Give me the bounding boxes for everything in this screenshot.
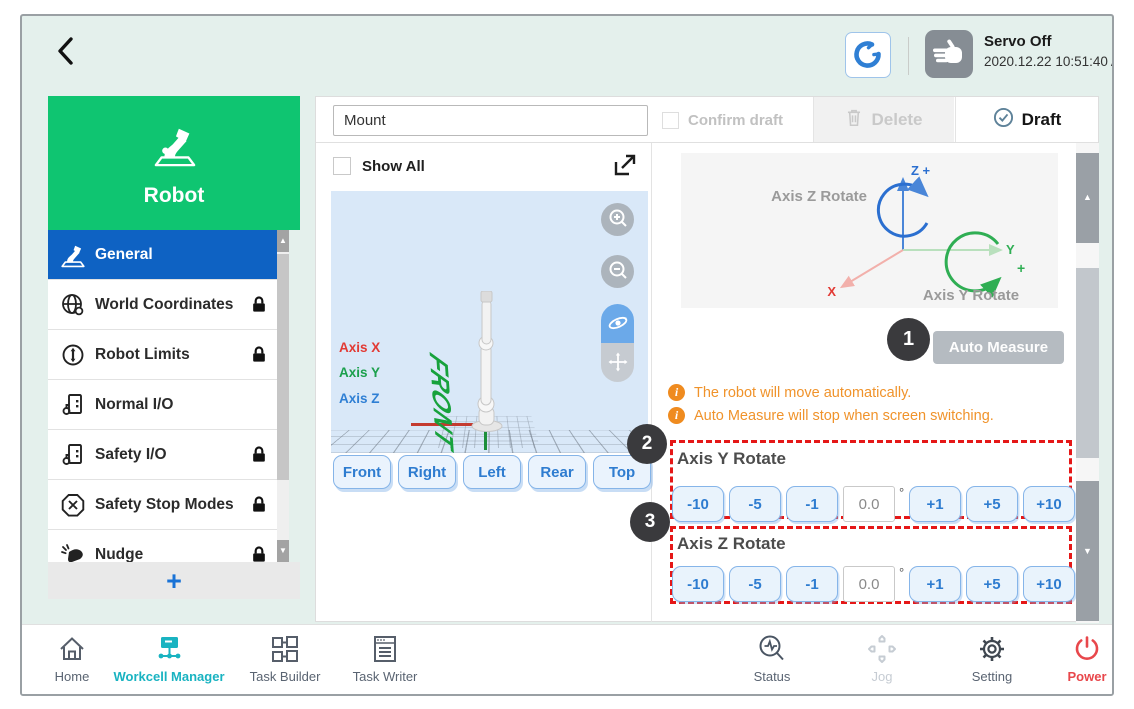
- check-circle-icon: [993, 107, 1014, 133]
- main-panel: Confirm draft Delete Draft Show All: [315, 96, 1099, 622]
- view-front-button[interactable]: Front: [333, 455, 391, 489]
- axis-z-rotate-label: Axis Z Rotate: [771, 188, 867, 205]
- sidebar-menu: General World Coordinates: [48, 230, 289, 576]
- robot-arm-model: [453, 291, 517, 438]
- show-all-label: Show All: [362, 158, 425, 175]
- show-all-checkbox[interactable]: [333, 157, 351, 175]
- annotation-badge-3: 3: [630, 502, 670, 542]
- direct-teach-button[interactable]: [845, 32, 891, 78]
- delete-button[interactable]: Delete: [813, 97, 954, 142]
- sidebar-item-normal-io[interactable]: Normal I/O: [48, 380, 277, 430]
- axis-y-minus-10-button[interactable]: -10: [672, 486, 724, 522]
- sidebar-item-label: Safety I/O: [95, 446, 167, 464]
- scrollbar-thumb[interactable]: [277, 254, 289, 480]
- scroll-down-icon[interactable]: ▼: [277, 540, 289, 562]
- axis-z-plus-5-button[interactable]: +5: [966, 566, 1018, 602]
- add-workcell-item-button[interactable]: +: [48, 562, 300, 599]
- axis-z-rotate-title: Axis Z Rotate: [677, 534, 786, 554]
- view-rear-button[interactable]: Rear: [528, 455, 586, 489]
- y-axis-label: Y: [1006, 242, 1015, 257]
- view-left-button[interactable]: Left: [463, 455, 521, 489]
- bottom-nav-bar: Home Workcell Manager: [22, 624, 1112, 695]
- power-icon: [1022, 633, 1114, 665]
- sidebar-item-general[interactable]: General: [48, 230, 277, 280]
- app-frame: Servo Off 2020.12.22 10:51:40 AM Robot: [20, 14, 1114, 696]
- axis-z-minus-5-button[interactable]: -5: [729, 566, 781, 602]
- degree-unit: °: [899, 565, 904, 580]
- warning-text: Auto Measure will stop when screen switc…: [694, 408, 994, 424]
- axis-z-key: Axis Z: [339, 391, 380, 406]
- io-panel-icon: [60, 442, 86, 468]
- item-name-input[interactable]: [333, 105, 648, 136]
- degree-unit: °: [899, 485, 904, 500]
- sidebar-item-label: General: [95, 246, 153, 264]
- axis-y-rotate-title: Axis Y Rotate: [677, 449, 786, 469]
- task-writer-icon: [320, 633, 450, 665]
- panel-divider: [651, 143, 652, 622]
- back-button[interactable]: [46, 30, 86, 74]
- zoom-out-button[interactable]: [601, 255, 634, 288]
- axis-z-minus-1-button[interactable]: -1: [786, 566, 838, 602]
- auto-measure-button[interactable]: Auto Measure: [933, 331, 1064, 364]
- z-axis-label: Z +: [911, 163, 931, 178]
- sidebar-item-safety-stop-modes[interactable]: Safety Stop Modes: [48, 480, 277, 530]
- nav-label: Task Writer: [320, 669, 450, 684]
- sidebar-item-robot-limits[interactable]: Robot Limits: [48, 330, 277, 380]
- axis-y-minus-1-button[interactable]: -1: [786, 486, 838, 522]
- viewer-mode-toggle: [601, 304, 634, 382]
- axis-y-plus-1-button[interactable]: +1: [909, 486, 961, 522]
- scroll-down-icon[interactable]: ▼: [1076, 481, 1099, 621]
- robot-3d-viewer[interactable]: FRONT Axis X Axis Y Axis Z: [331, 191, 648, 453]
- robot-arm-icon: [60, 242, 86, 268]
- screen: Servo Off 2020.12.22 10:51:40 AM Robot: [0, 0, 1134, 709]
- sidebar-item-label: Normal I/O: [95, 396, 173, 414]
- delete-label: Delete: [871, 110, 922, 130]
- axis-y-rotate-label: Axis Y Rotate: [923, 287, 1019, 304]
- back-chevron-icon: [53, 55, 79, 70]
- panel-scrollbar[interactable]: ▲ ▼: [1076, 143, 1099, 623]
- scroll-up-icon[interactable]: ▲: [277, 230, 289, 252]
- annotation-badge-2: 2: [627, 424, 667, 464]
- y-plus-label: +: [1017, 260, 1025, 276]
- sidebar-scrollbar[interactable]: ▲ ▼: [277, 230, 289, 562]
- io-panel-icon: [60, 392, 86, 418]
- lock-icon: [249, 495, 269, 515]
- gripper-icon: [851, 60, 885, 75]
- sidebar-item-label: Nudge: [95, 546, 143, 564]
- topbar-divider: [908, 37, 909, 75]
- sidebar-item-label: Safety Stop Modes: [95, 496, 234, 514]
- nav-power[interactable]: Power: [1022, 633, 1114, 684]
- warning-row: i Auto Measure will stop when screen swi…: [668, 407, 994, 424]
- pan-view-button[interactable]: [601, 343, 634, 382]
- hand-icon: [925, 65, 973, 82]
- nav-task-writer[interactable]: Task Writer: [320, 633, 450, 684]
- axis-z-value-input[interactable]: [843, 566, 895, 602]
- lock-icon: [249, 445, 269, 465]
- warning-text: The robot will move automatically.: [694, 385, 911, 401]
- nav-label: Power: [1022, 669, 1114, 684]
- x-axis-label: X: [827, 284, 836, 299]
- sidebar-item-world-coordinates[interactable]: World Coordinates: [48, 280, 277, 330]
- warning-row: i The robot will move automatically.: [668, 384, 911, 401]
- nav-workcell-manager[interactable]: Workcell Manager: [104, 633, 234, 684]
- annotation-badge-1: 1: [887, 318, 930, 361]
- limits-icon: [60, 342, 86, 368]
- info-icon: i: [668, 384, 685, 401]
- servo-status: Servo Off: [984, 33, 1052, 50]
- axis-z-minus-10-button[interactable]: -10: [672, 566, 724, 602]
- axis-y-minus-5-button[interactable]: -5: [729, 486, 781, 522]
- scroll-up-icon[interactable]: ▲: [1076, 153, 1099, 243]
- fullscreen-expand-button[interactable]: [610, 151, 640, 181]
- rotate-view-button[interactable]: [601, 304, 634, 343]
- stop-octagon-icon: [60, 492, 86, 518]
- zoom-in-button[interactable]: [601, 203, 634, 236]
- sidebar-item-label: Robot Limits: [95, 346, 190, 364]
- servo-hand-tile[interactable]: [925, 30, 973, 78]
- sidebar-item-safety-io[interactable]: Safety I/O: [48, 430, 277, 480]
- info-icon: i: [668, 407, 685, 424]
- confirm-draft-checkbox[interactable]: [662, 112, 679, 129]
- sidebar-header: Robot: [48, 96, 300, 230]
- sidebar-title: Robot: [48, 184, 300, 208]
- timestamp: 2020.12.22 10:51:40 AM: [984, 54, 1114, 69]
- draft-button[interactable]: Draft: [955, 97, 1098, 142]
- expand-icon: [611, 167, 639, 182]
- lock-icon: [249, 345, 269, 365]
- axis-z-plus-1-button[interactable]: +1: [909, 566, 961, 602]
- scrollbar-thumb[interactable]: [1076, 268, 1099, 458]
- sidebar-item-label: World Coordinates: [95, 296, 233, 314]
- nav-label: Workcell Manager: [104, 669, 234, 684]
- rotation-axes-diagram: Z + Axis Z Rotate Y + X Axis Y Rotate: [681, 153, 1058, 308]
- draft-label: Draft: [1022, 110, 1062, 130]
- axis-x-key: Axis X: [339, 340, 380, 355]
- confirm-draft-label: Confirm draft: [688, 112, 783, 129]
- globe-icon: [60, 292, 86, 318]
- axis-z-plus-10-button[interactable]: +10: [1023, 566, 1075, 602]
- axis-y-value-input[interactable]: [843, 486, 895, 522]
- axis-y-plus-5-button[interactable]: +5: [966, 486, 1018, 522]
- axis-y-key: Axis Y: [339, 365, 380, 380]
- trash-icon: [845, 108, 863, 132]
- workcell-manager-icon: [104, 633, 234, 665]
- axis-y-plus-10-button[interactable]: +10: [1023, 486, 1075, 522]
- view-right-button[interactable]: Right: [398, 455, 456, 489]
- lock-icon: [249, 295, 269, 315]
